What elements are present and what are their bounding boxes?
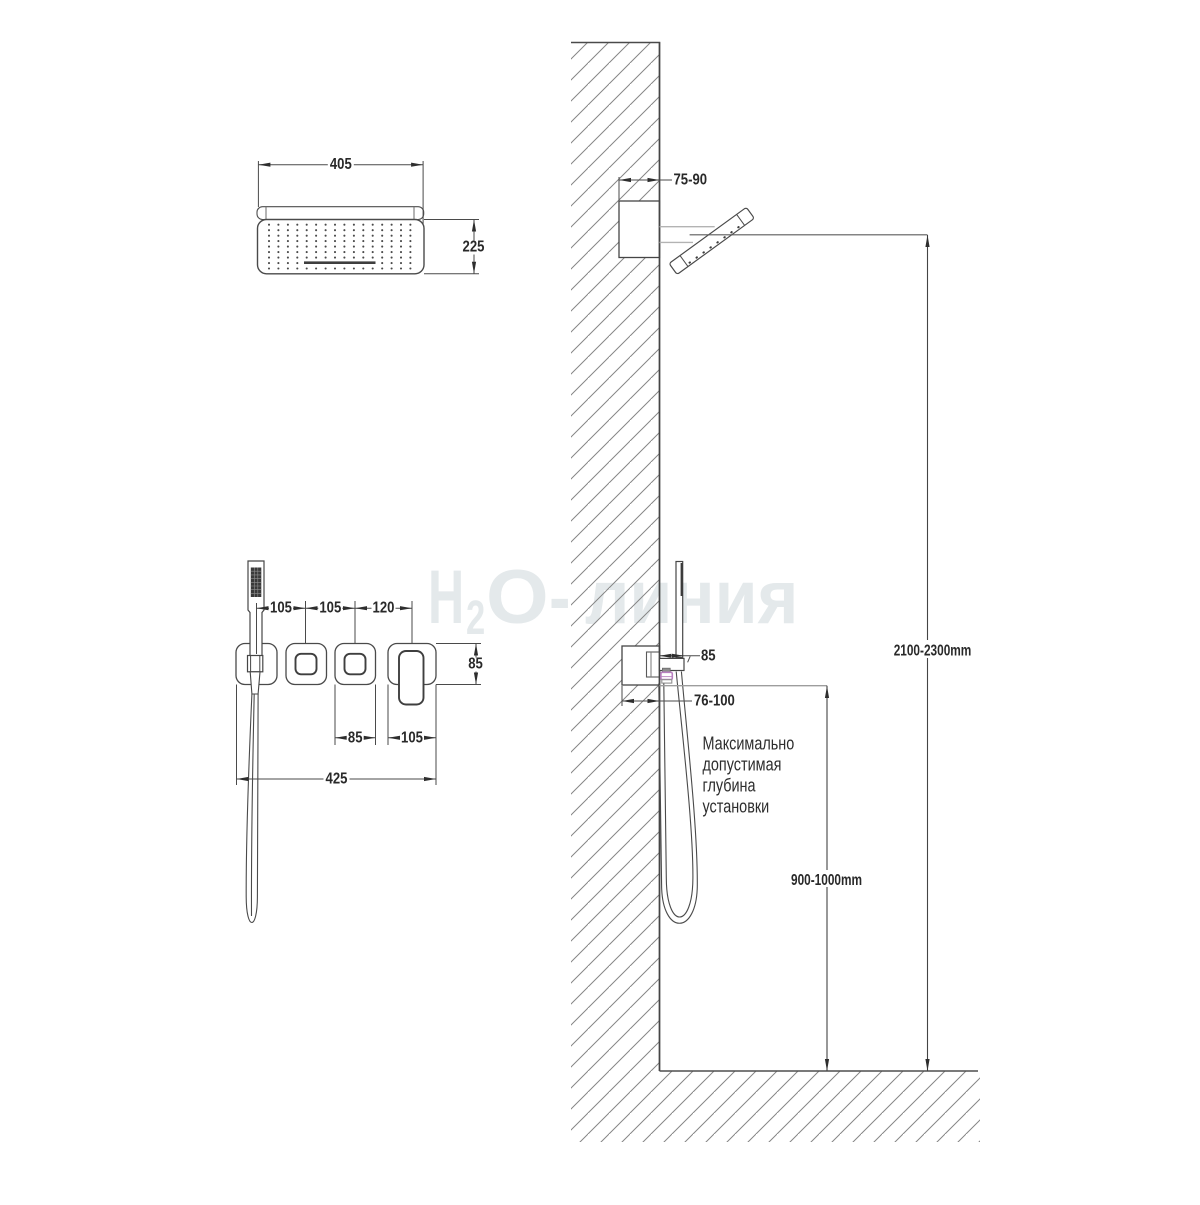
svg-text:105: 105 [319,600,341,617]
svg-text:85: 85 [701,647,716,664]
svg-text:105: 105 [270,600,292,617]
svg-text:O: O [486,554,549,639]
svg-text:225: 225 [463,238,485,255]
svg-text:75-90: 75-90 [674,171,708,188]
svg-text:установки: установки [703,796,770,817]
svg-text:2: 2 [466,590,485,644]
svg-text:2100-2300mm: 2100-2300mm [894,641,972,659]
svg-text:-: - [549,554,571,639]
svg-text:900-1000mm: 900-1000mm [791,870,862,888]
svg-text:120: 120 [373,600,395,617]
svg-text:H: H [428,555,464,640]
svg-text:допустимая: допустимая [703,754,782,775]
svg-text:85: 85 [468,655,483,672]
svg-text:425: 425 [326,770,348,787]
svg-text:405: 405 [330,156,352,173]
svg-text:105: 105 [401,729,423,746]
svg-text:Максимально: Максимально [703,733,795,754]
svg-text:76-100: 76-100 [694,692,735,709]
svg-text:глубина: глубина [703,775,757,796]
svg-text:85: 85 [348,729,363,746]
